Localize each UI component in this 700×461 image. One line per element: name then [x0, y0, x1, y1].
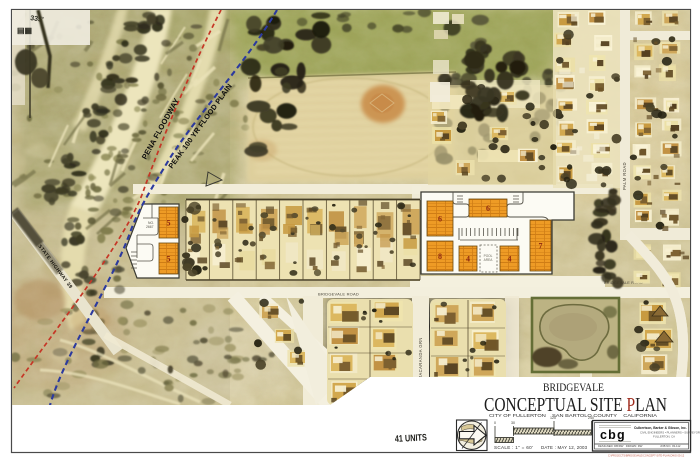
svg-text:BRIDGEVALE: BRIDGEVALE [543, 380, 604, 394]
svg-text:30: 30 [511, 421, 515, 425]
svg-text:6: 6 [486, 204, 490, 213]
svg-text:7: 7 [539, 242, 543, 251]
svg-text:C:\PROJECTS\BRIDGEVALE\CONCEPT: C:\PROJECTS\BRIDGEVALE\CONCEPT-SITE-PLAN… [608, 453, 685, 457]
svg-text:Culbertson, Barker & Gibson, I: Culbertson, Barker & Gibson, Inc. [634, 426, 687, 430]
svg-text:▤▦: ▤▦ [17, 26, 32, 35]
svg-text:SCALE : 1" = 60': SCALE : 1" = 60' [494, 445, 533, 450]
svg-text:4: 4 [466, 255, 470, 264]
svg-text:5: 5 [167, 219, 171, 228]
svg-text:PALM ROAD: PALM ROAD [622, 162, 627, 190]
svg-text:CITY OF FULLERTON SAN BARTO: CITY OF FULLERTON SAN BARTOLO COUNTY CAL… [489, 413, 657, 418]
svg-text:8: 8 [438, 252, 442, 261]
svg-text:DESIGNED: DB/RW DRAWN: RW: DESIGNED: DB/RW DRAWN: RW [598, 444, 643, 448]
svg-text:AREA: AREA [484, 258, 494, 262]
svg-text:JOB NO. 03-112: JOB NO. 03-112 [660, 444, 681, 448]
svg-text:41 UNITS: 41 UNITS [395, 432, 428, 445]
svg-text:2667: 2667 [146, 225, 154, 229]
svg-text:6: 6 [438, 215, 442, 224]
svg-text:5: 5 [167, 255, 171, 264]
svg-text:DATE : MAY 12, 2003: DATE : MAY 12, 2003 [541, 445, 588, 450]
svg-text:cbg: cbg [600, 428, 626, 442]
svg-text:JACARANDA GRN: JACARANDA GRN [418, 337, 423, 378]
svg-text:240: 240 [588, 416, 594, 420]
svg-text:FULLERTON, CA: FULLERTON, CA [653, 435, 675, 439]
svg-text:120: 120 [550, 416, 556, 420]
svg-text:0: 0 [494, 421, 496, 425]
svg-text:4: 4 [508, 255, 512, 264]
svg-text:BRIDGEVALE ROAD: BRIDGEVALE ROAD [318, 292, 359, 297]
